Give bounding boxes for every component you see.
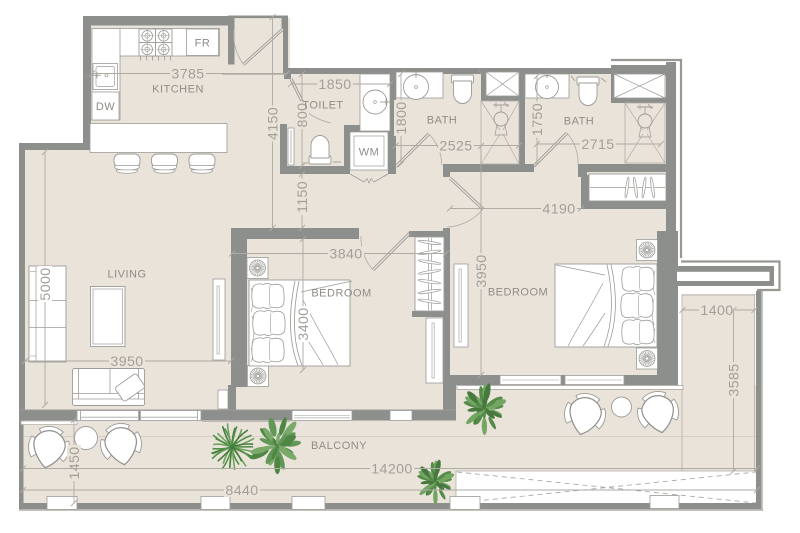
svg-text:FR: FR xyxy=(195,38,211,50)
svg-text:BEDROOM: BEDROOM xyxy=(488,287,548,299)
svg-text:DW: DW xyxy=(96,101,115,113)
svg-text:2525: 2525 xyxy=(439,138,472,154)
svg-text:BALCONY: BALCONY xyxy=(311,440,367,452)
svg-text:1800: 1800 xyxy=(394,101,410,134)
svg-text:14200: 14200 xyxy=(371,461,412,477)
svg-text:4190: 4190 xyxy=(542,201,575,217)
svg-text:1150: 1150 xyxy=(295,181,311,213)
svg-text:3585: 3585 xyxy=(726,363,742,396)
svg-text:BATH: BATH xyxy=(427,115,458,127)
svg-text:TOILET: TOILET xyxy=(302,100,343,112)
svg-text:3400: 3400 xyxy=(296,307,312,340)
svg-text:1450: 1450 xyxy=(67,446,83,479)
svg-text:BEDROOM: BEDROOM xyxy=(311,288,371,300)
svg-text:3950: 3950 xyxy=(110,354,143,370)
svg-text:1400: 1400 xyxy=(700,303,733,319)
svg-text:1750: 1750 xyxy=(530,103,546,136)
svg-text:LIVING: LIVING xyxy=(107,269,146,281)
svg-text:4150: 4150 xyxy=(265,107,281,140)
svg-text:5000: 5000 xyxy=(38,267,54,300)
svg-text:KITCHEN: KITCHEN xyxy=(152,84,204,96)
svg-text:WM: WM xyxy=(359,147,380,159)
svg-text:3840: 3840 xyxy=(329,246,362,262)
svg-text:1850: 1850 xyxy=(318,77,351,93)
svg-text:8440: 8440 xyxy=(225,483,258,499)
svg-text:BATH: BATH xyxy=(564,116,595,128)
svg-text:3785: 3785 xyxy=(171,66,204,82)
svg-text:2715: 2715 xyxy=(581,137,614,153)
svg-text:3950: 3950 xyxy=(474,254,490,287)
